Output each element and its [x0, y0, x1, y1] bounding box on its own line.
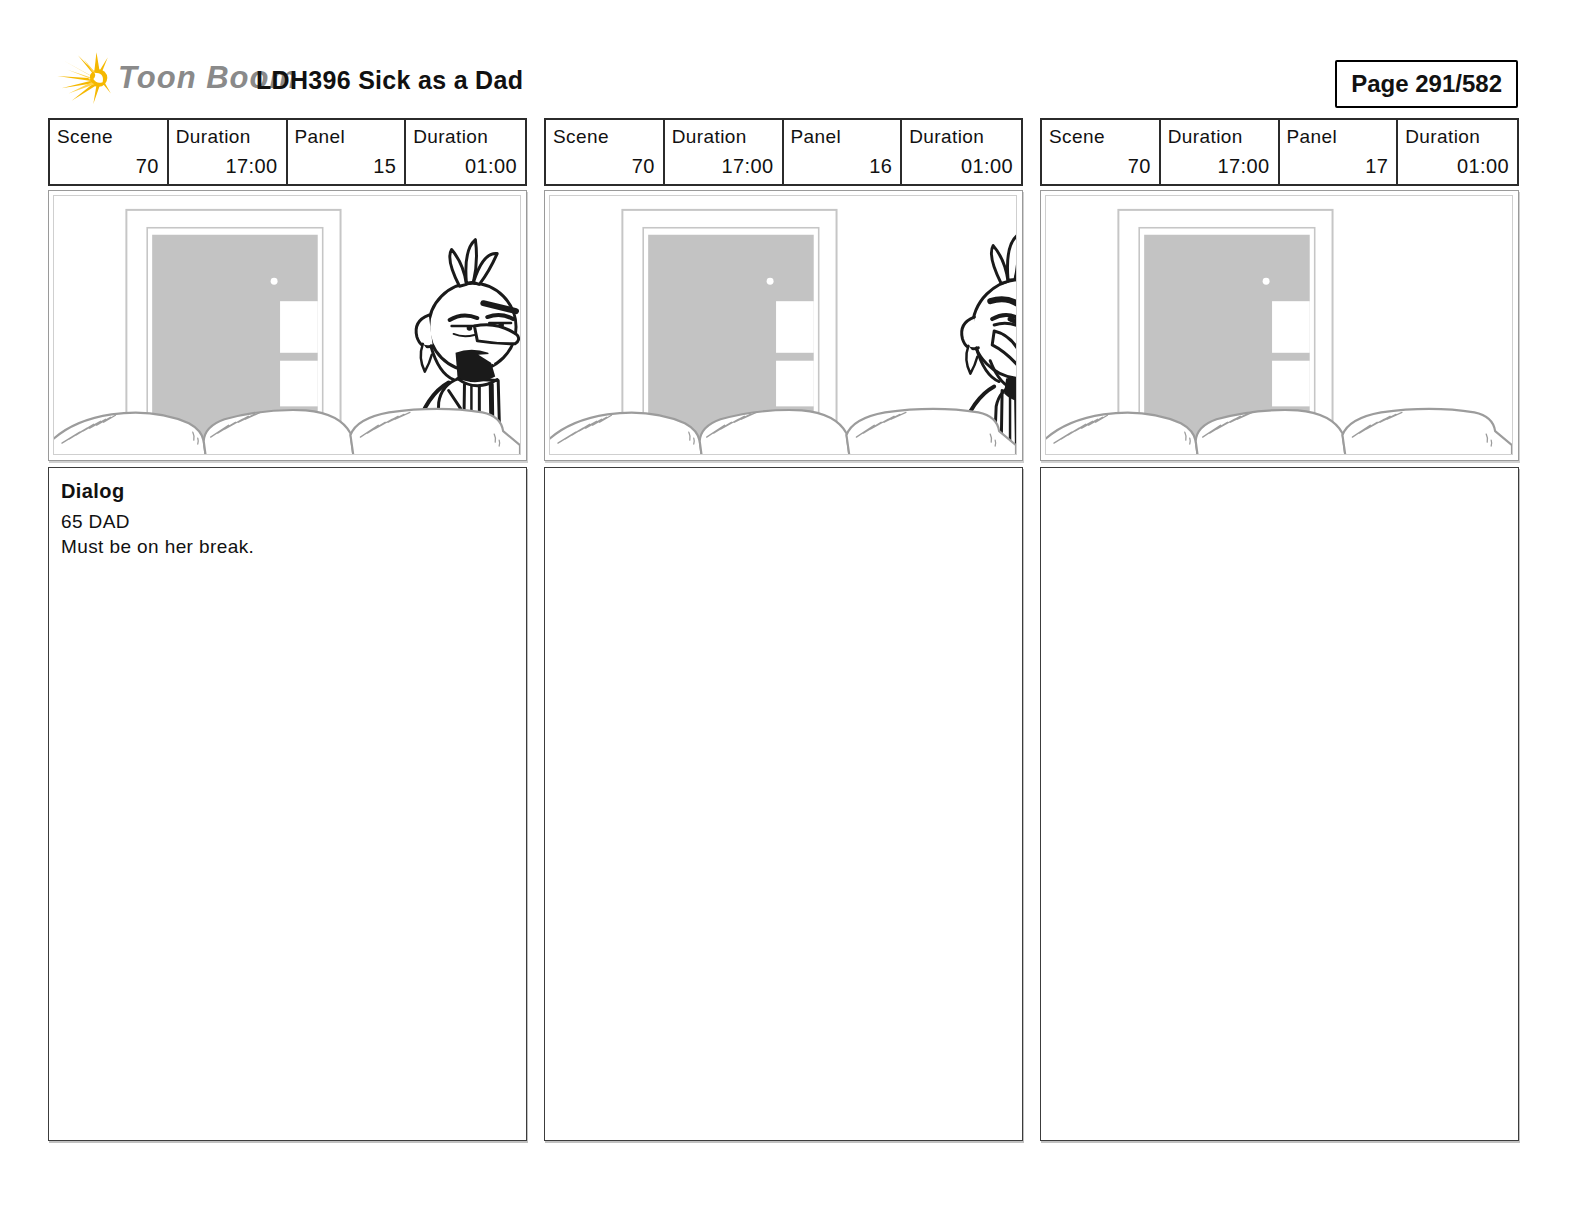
meta-cell-panel: Panel 17 — [1280, 120, 1399, 184]
caption-title: Dialog — [61, 480, 514, 503]
panel-number-value: 17 — [1365, 155, 1388, 178]
scene-duration-value: 17:00 — [1217, 155, 1269, 178]
storyboard-sketch — [53, 195, 521, 455]
panel-label: Panel — [295, 126, 346, 148]
panel-caption-box: Dialog 65 DAD Must be on her break. — [48, 467, 527, 1141]
panel-drawing-frame — [48, 190, 527, 461]
duration-label: Duration — [413, 126, 488, 148]
scene-duration-value: 17:00 — [225, 155, 277, 178]
duration-label: Duration — [672, 126, 747, 148]
meta-cell-panel: Panel 15 — [288, 120, 407, 184]
scene-label: Scene — [1049, 126, 1105, 148]
scene-value: 70 — [1128, 155, 1151, 178]
page-indicator: Page 291/582 — [1335, 60, 1518, 108]
panel-label: Panel — [1287, 126, 1338, 148]
panel-duration-value: 01:00 — [465, 155, 517, 178]
panel-number-value: 15 — [373, 155, 396, 178]
meta-cell-scene: Scene 70 — [50, 120, 169, 184]
scene-label: Scene — [553, 126, 609, 148]
scene-label: Scene — [57, 126, 113, 148]
panel-columns: Scene 70 Duration 17:00 Panel 15 Duratio… — [48, 118, 1519, 1141]
storyboard-page: Toon Boom LDH396 Sick as a Dad Page 291/… — [0, 0, 1584, 1224]
page-header: Toon Boom LDH396 Sick as a Dad Page 291/… — [0, 0, 1584, 118]
panel-meta-table: Scene 70 Duration 17:00 Panel 15 Duratio… — [48, 118, 527, 186]
duration-label: Duration — [176, 126, 251, 148]
meta-cell-scene-duration: Duration 17:00 — [169, 120, 288, 184]
couch-cushions — [549, 409, 1016, 455]
document-title: LDH396 Sick as a Dad — [256, 66, 523, 95]
storyboard-sketch — [549, 195, 1017, 455]
toonboom-starburst-icon — [50, 50, 114, 106]
meta-cell-panel-duration: Duration 01:00 — [406, 120, 525, 184]
duration-label: Duration — [1168, 126, 1243, 148]
couch-cushions — [1045, 409, 1512, 455]
panel-caption-box — [544, 467, 1023, 1141]
panel-duration-value: 01:00 — [1457, 155, 1509, 178]
meta-cell-scene-duration: Duration 17:00 — [1161, 120, 1280, 184]
scene-duration-value: 17:00 — [721, 155, 773, 178]
meta-cell-panel: Panel 16 — [784, 120, 903, 184]
storyboard-sketch — [1045, 195, 1513, 455]
caption-body: 65 DAD Must be on her break. — [61, 509, 514, 559]
panel-meta-table: Scene 70 Duration 17:00 Panel 17 Duratio… — [1040, 118, 1519, 186]
panel-meta-table: Scene 70 Duration 17:00 Panel 16 Duratio… — [544, 118, 1023, 186]
meta-cell-panel-duration: Duration 01:00 — [902, 120, 1021, 184]
meta-cell-panel-duration: Duration 01:00 — [1398, 120, 1517, 184]
scene-value: 70 — [632, 155, 655, 178]
panel-number-value: 16 — [869, 155, 892, 178]
duration-label: Duration — [1405, 126, 1480, 148]
panel-caption-box — [1040, 467, 1519, 1141]
panel-drawing-frame — [1040, 190, 1519, 461]
storyboard-panel: Scene 70 Duration 17:00 Panel 17 Duratio… — [1040, 118, 1519, 1141]
panel-label: Panel — [791, 126, 842, 148]
meta-cell-scene: Scene 70 — [1042, 120, 1161, 184]
duration-label: Duration — [909, 126, 984, 148]
scene-value: 70 — [136, 155, 159, 178]
meta-cell-scene-duration: Duration 17:00 — [665, 120, 784, 184]
panel-drawing-frame — [544, 190, 1023, 461]
storyboard-panel: Scene 70 Duration 17:00 Panel 16 Duratio… — [544, 118, 1023, 1141]
panel-duration-value: 01:00 — [961, 155, 1013, 178]
couch-cushions — [53, 409, 520, 455]
storyboard-panel: Scene 70 Duration 17:00 Panel 15 Duratio… — [48, 118, 527, 1141]
meta-cell-scene: Scene 70 — [546, 120, 665, 184]
